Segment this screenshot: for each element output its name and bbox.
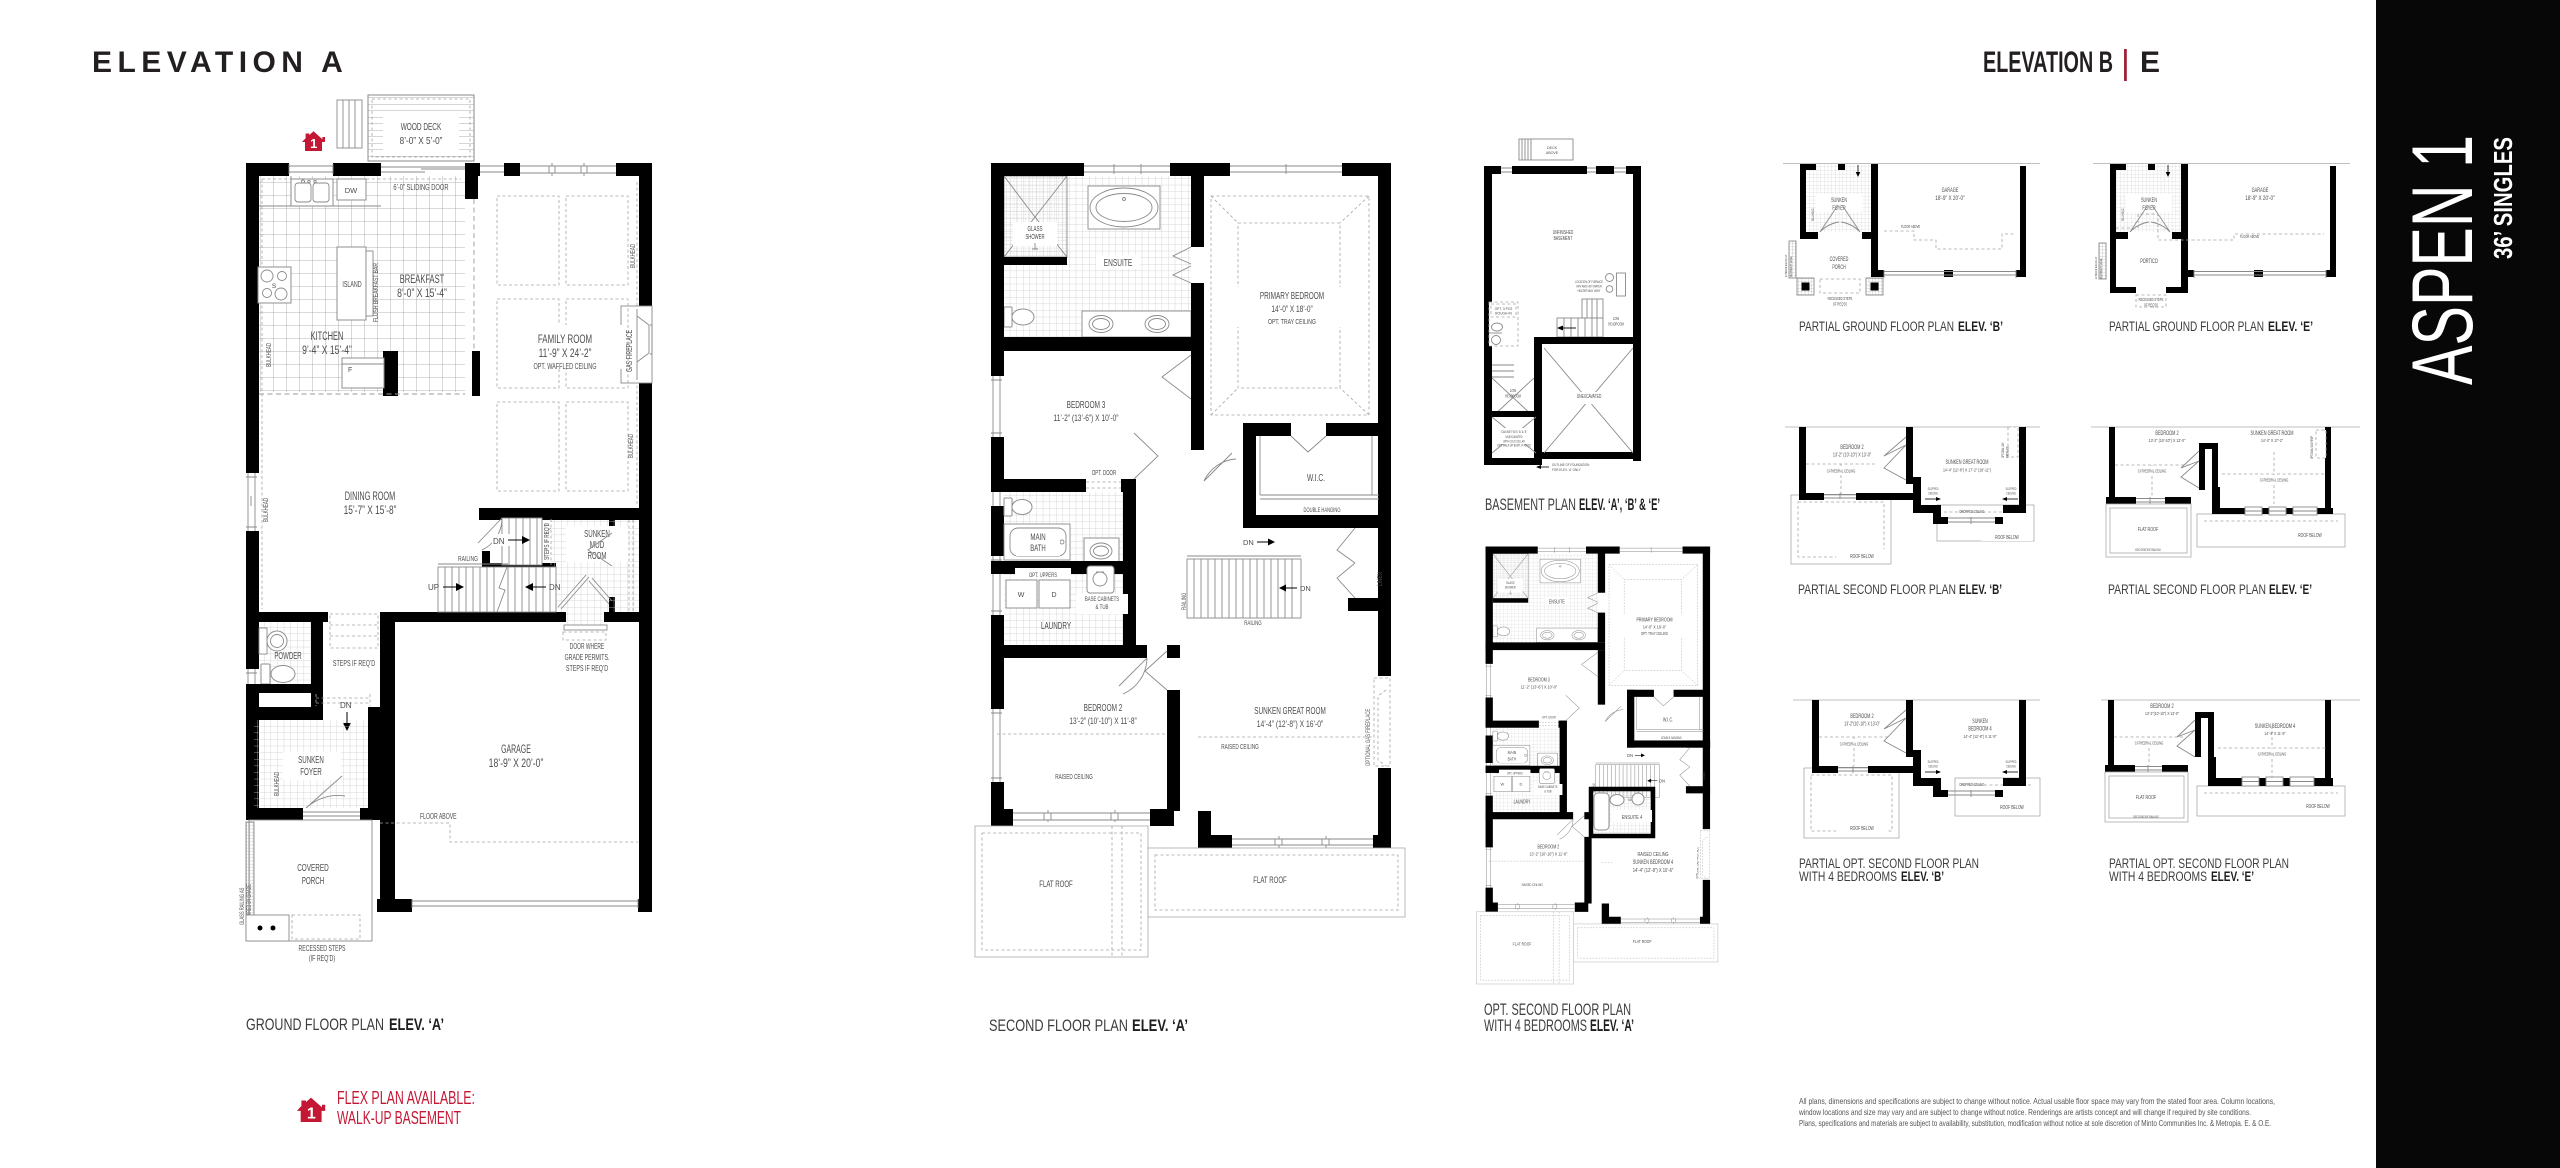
svg-text:PORTICO: PORTICO xyxy=(2140,258,2158,265)
svg-text:GAS FIREPLACE: GAS FIREPLACE xyxy=(625,330,634,372)
svg-text:ASPEN 1: ASPEN 1 xyxy=(2395,135,2491,385)
svg-text:GARAGE: GARAGE xyxy=(501,744,531,756)
svg-text:LAUNDRY: LAUNDRY xyxy=(1041,621,1071,632)
svg-text:15’-7” X 15’-8”: 15’-7” X 15’-8” xyxy=(344,505,397,517)
svg-text:PORCH: PORCH xyxy=(1832,264,1845,271)
svg-text:UP: UP xyxy=(428,583,439,592)
svg-text:BASEMENT PLAN: BASEMENT PLAN xyxy=(1485,495,1576,514)
svg-text:(IF REQ’D): (IF REQ’D) xyxy=(309,954,336,963)
svg-text:ELEV. ‘A’: ELEV. ‘A’ xyxy=(1590,1016,1634,1035)
svg-text:DOOR WHERE: DOOR WHERE xyxy=(570,642,604,651)
svg-text:BULKHEAD: BULKHEAD xyxy=(628,434,635,458)
svg-text:ELEV. ‘A’: ELEV. ‘A’ xyxy=(389,1015,444,1034)
svg-text:SUNKEN BEDROOM 4: SUNKEN BEDROOM 4 xyxy=(2255,724,2296,730)
svg-text:LINEN: LINEN xyxy=(1377,572,1384,586)
svg-text:HEADROOM: HEADROOM xyxy=(1608,322,1624,327)
svg-text:BREAKFAST: BREAKFAST xyxy=(400,274,445,286)
svg-text:FLUSH BREAKFAST BAR: FLUSH BREAKFAST BAR xyxy=(371,263,380,322)
svg-text:UNEXCAVATED: UNEXCAVATED xyxy=(1577,394,1602,400)
svg-text:DN: DN xyxy=(1243,538,1254,547)
svg-text:ROOF BELOW: ROOF BELOW xyxy=(2306,804,2330,810)
svg-text:SUNKEN: SUNKEN xyxy=(2141,197,2157,204)
svg-text:SLOPPED: SLOPPED xyxy=(2006,760,2017,764)
svg-text:BASE CABINETS: BASE CABINETS xyxy=(1085,596,1120,603)
svg-text:13'-2" (10'-10") X 13'-0": 13'-2" (10'-10") X 13'-0" xyxy=(1833,453,1871,459)
svg-text:13'-2"(10'-10") X 13'-0": 13'-2"(10'-10") X 13'-0" xyxy=(1844,722,1880,728)
svg-text:HRV AND HOT WATER: HRV AND HOT WATER xyxy=(1576,285,1602,289)
svg-text:BEDROOM 2: BEDROOM 2 xyxy=(1084,703,1123,714)
svg-text:ISLAND: ISLAND xyxy=(342,280,361,289)
svg-text:ABOVE: ABOVE xyxy=(1546,151,1559,155)
svg-text:(IF REQ'D): (IF REQ'D) xyxy=(1833,302,1847,307)
svg-text:BEDROOM 2: BEDROOM 2 xyxy=(2150,704,2174,710)
svg-text:STEPS IF REQ’D: STEPS IF REQ’D xyxy=(333,659,375,668)
svg-text:ROOF BELOW: ROOF BELOW xyxy=(2000,805,2024,811)
svg-text:Plans, specifications and mate: Plans, specifications and materials are … xyxy=(1799,1118,2271,1128)
svg-text:CATHEDRAL CEILING: CATHEDRAL CEILING xyxy=(2260,478,2289,483)
svg-text:RAISED CEILING: RAISED CEILING xyxy=(1637,852,1668,858)
svg-text:REQUIRED BY GRADE: REQUIRED BY GRADE xyxy=(2099,259,2103,280)
svg-text:BASEMENT: BASEMENT xyxy=(1554,236,1573,242)
svg-text:ENSUITE: ENSUITE xyxy=(1104,258,1133,269)
svg-text:SECOND FLOOR PLAN: SECOND FLOOR PLAN xyxy=(989,1016,1128,1035)
svg-text:RECESSED STEPS: RECESSED STEPS xyxy=(2139,297,2164,302)
svg-text:8’-0” X 5’-0”: 8’-0” X 5’-0” xyxy=(400,135,443,147)
svg-text:SLOPPED: SLOPPED xyxy=(1928,760,1939,764)
svg-text:CAN BE FLEX 'A' & 'E': CAN BE FLEX 'A' & 'E' xyxy=(1501,430,1527,434)
svg-text:11’-9” X 24’-2”: 11’-9” X 24’-2” xyxy=(539,348,592,360)
svg-text:CATHEDRAL CEILING: CATHEDRAL CEILING xyxy=(1827,469,1856,474)
svg-text:UNEXCAVATED: UNEXCAVATED xyxy=(1506,435,1523,439)
svg-text:HEATER MAY VARY: HEATER MAY VARY xyxy=(1578,289,1601,293)
svg-text:KITCHEN: KITCHEN xyxy=(311,331,344,343)
svg-text:POWDER: POWDER xyxy=(274,651,301,662)
svg-text:STEPS IF REQ’D: STEPS IF REQ’D xyxy=(566,664,608,673)
svg-text:window locations and size may: window locations and size may vary and a… xyxy=(1798,1107,2251,1117)
svg-text:GLASS: GLASS xyxy=(1028,226,1043,233)
svg-text:FLEX PLAN AVAILABLE:: FLEX PLAN AVAILABLE: xyxy=(337,1088,475,1108)
svg-text:BEDROOM 2: BEDROOM 2 xyxy=(1840,445,1864,451)
svg-text:COVERED: COVERED xyxy=(297,862,329,874)
svg-text:MAIN: MAIN xyxy=(1030,532,1045,542)
svg-text:ROUGH-IN: ROUGH-IN xyxy=(1495,312,1512,316)
svg-text:EXTERIOR RAILING AS: EXTERIOR RAILING AS xyxy=(2094,257,2098,279)
svg-text:ENSUITE 4: ENSUITE 4 xyxy=(1622,815,1643,821)
svg-text:ROOF BELOW: ROOF BELOW xyxy=(1850,554,1874,560)
svg-text:CEILING: CEILING xyxy=(2006,765,2016,769)
svg-text:WITH 4 BEDROOMS: WITH 4 BEDROOMS xyxy=(2109,869,2207,884)
svg-text:DOUBLE HANGING: DOUBLE HANGING xyxy=(1304,507,1341,514)
svg-text:BEDROOM 3: BEDROOM 3 xyxy=(1067,400,1106,411)
svg-text:FLOOR ABOVE: FLOOR ABOVE xyxy=(420,812,457,821)
svg-text:ELEV. ‘E’: ELEV. ‘E’ xyxy=(2268,319,2313,334)
svg-text:13'-2" (10'-10") X 13'-0": 13'-2" (10'-10") X 13'-0" xyxy=(2149,438,2186,444)
svg-text:14'-4" (12'-8") X 17'-2" (18': 14'-4" (12'-8") X 17'-2" (18'-11") xyxy=(1943,468,1991,474)
svg-text:LOW: LOW xyxy=(1510,388,1517,393)
svg-text:6’-0” SLIDING DOOR: 6’-0” SLIDING DOOR xyxy=(393,182,448,192)
svg-text:ELEV. ‘B’: ELEV. ‘B’ xyxy=(1959,582,2002,597)
svg-text:RAILING: RAILING xyxy=(458,554,478,563)
svg-text:DECK: DECK xyxy=(1547,146,1558,150)
svg-text:CEILING: CEILING xyxy=(1928,765,1938,769)
svg-text:13'-2"(10'-10") X 13'-0": 13'-2"(10'-10") X 13'-0" xyxy=(2145,711,2179,717)
svg-text:CATHEDRAL CEILING: CATHEDRAL CEILING xyxy=(1840,742,1869,747)
svg-text:BULKHEAD: BULKHEAD xyxy=(2121,208,2125,221)
svg-text:PARTIAL SECOND FLOOR PLAN: PARTIAL SECOND FLOOR PLAN xyxy=(2108,582,2266,597)
svg-text:HEADROOM: HEADROOM xyxy=(1505,394,1521,399)
svg-text:PORCH: PORCH xyxy=(302,875,325,887)
svg-text:BULKHEAD: BULKHEAD xyxy=(274,772,281,796)
svg-text:OPT. UPPERS: OPT. UPPERS xyxy=(1029,572,1058,579)
svg-text:ELEV. ‘E’: ELEV. ‘E’ xyxy=(2211,869,2254,884)
svg-text:CEILING: CEILING xyxy=(2006,492,2016,496)
svg-text:DN: DN xyxy=(493,537,505,546)
svg-text:14’-4” (12’-8”) X 10’-6”: 14’-4” (12’-8”) X 10’-6” xyxy=(1633,868,1674,874)
svg-text:W.I.C.: W.I.C. xyxy=(1307,473,1325,484)
svg-text:ROOF BELOW: ROOF BELOW xyxy=(2298,533,2322,539)
svg-text:9’-4” X 15’-4”: 9’-4” X 15’-4” xyxy=(302,345,352,357)
svg-text:DN: DN xyxy=(1300,584,1311,593)
svg-text:13’-2” (10’-10”) X 11’-8”: 13’-2” (10’-10”) X 11’-8” xyxy=(1069,716,1136,726)
svg-text:W: W xyxy=(1018,592,1025,599)
svg-text:DN: DN xyxy=(549,583,561,592)
svg-text:PRIMARY BEDROOM: PRIMARY BEDROOM xyxy=(1260,291,1324,302)
svg-text:DECORATIVE RAILING: DECORATIVE RAILING xyxy=(2135,548,2161,552)
svg-text:BULKHEAD: BULKHEAD xyxy=(630,244,637,268)
svg-text:ELEV. ‘A’: ELEV. ‘A’ xyxy=(1132,1016,1188,1035)
svg-text:SHOWER: SHOWER xyxy=(1025,234,1044,241)
svg-text:PARTIAL SECOND FLOOR PLAN: PARTIAL SECOND FLOOR PLAN xyxy=(1798,582,1956,597)
svg-text:BEDROOM 2: BEDROOM 2 xyxy=(2155,431,2179,437)
svg-text:RECESSED STEPS: RECESSED STEPS xyxy=(299,944,346,953)
svg-text:OPT. WAFFLED CEILING: OPT. WAFFLED CEILING xyxy=(534,362,597,371)
svg-text:WOOD DECK: WOOD DECK xyxy=(401,121,442,133)
svg-text:14’-4” (12’-8”) X 16’-0”: 14’-4” (12’-8”) X 16’-0” xyxy=(1257,719,1324,729)
svg-text:DW: DW xyxy=(345,186,358,195)
svg-text:1: 1 xyxy=(310,136,317,151)
svg-text:GRADE PERMITS.: GRADE PERMITS. xyxy=(565,653,610,662)
svg-text:SUNKEN: SUNKEN xyxy=(1972,719,1988,725)
svg-text:CATHEDRAL CEILING: CATHEDRAL CEILING xyxy=(2138,469,2167,474)
svg-text:DN: DN xyxy=(340,701,352,710)
svg-text:ELEV. ‘E’: ELEV. ‘E’ xyxy=(2269,582,2312,597)
svg-text:FLOOR ABOVE: FLOOR ABOVE xyxy=(2240,234,2259,239)
svg-text:WITH 4 BEDROOMS: WITH 4 BEDROOMS xyxy=(1484,1016,1587,1035)
svg-text:PARTIAL GROUND FLOOR PLAN: PARTIAL GROUND FLOOR PLAN xyxy=(1799,319,1954,334)
svg-text:DINING ROOM: DINING ROOM xyxy=(345,491,396,503)
svg-text:BULKHEAD: BULKHEAD xyxy=(266,343,273,367)
svg-text:SUNKEN: SUNKEN xyxy=(584,529,610,540)
svg-text:CEILING: CEILING xyxy=(1928,492,1938,496)
svg-text:RAISED CEILING: RAISED CEILING xyxy=(1221,744,1259,751)
svg-text:ELEV. ‘A’, ‘B’ & ‘E’: ELEV. ‘A’, ‘B’ & ‘E’ xyxy=(1579,495,1660,514)
svg-text:ROOF BELOW: ROOF BELOW xyxy=(1850,826,1874,832)
svg-text:SUNKEN GREAT ROOM: SUNKEN GREAT ROOM xyxy=(2251,431,2294,437)
svg-text:STEPS IF REQ’D: STEPS IF REQ’D xyxy=(544,523,551,560)
svg-text:PARTIAL GROUND FLOOR PLAN: PARTIAL GROUND FLOOR PLAN xyxy=(2109,319,2264,334)
svg-text:OPTIONAL GAS: OPTIONAL GAS xyxy=(2001,443,2005,459)
svg-text:RECESSED STEPS: RECESSED STEPS xyxy=(1828,296,1853,301)
svg-text:GLASS RAILING AS: GLASS RAILING AS xyxy=(240,888,246,925)
svg-text:ROOF BELOW: ROOF BELOW xyxy=(1995,535,2019,541)
svg-text:FLAT ROOF: FLAT ROOF xyxy=(1253,875,1287,885)
svg-text:36’ SINGLES: 36’ SINGLES xyxy=(2488,137,2518,259)
svg-text:1: 1 xyxy=(307,1105,316,1122)
svg-text:BATH: BATH xyxy=(1030,543,1046,553)
svg-text:11’-2” (13’-6”) X 10’-0”: 11’-2” (13’-6”) X 10’-0” xyxy=(1054,413,1119,423)
svg-text:SUNKEN GREAT ROOM: SUNKEN GREAT ROOM xyxy=(1254,706,1326,717)
svg-text:S: S xyxy=(272,283,277,290)
svg-text:All plans, dimensions and spec: All plans, dimensions and specifications… xyxy=(1799,1096,2275,1106)
svg-text:OPT. DOOR: OPT. DOOR xyxy=(1092,470,1116,477)
svg-text:14'-4" X 11'-8": 14'-4" X 11'-8" xyxy=(2264,731,2285,737)
svg-text:FAMILY ROOM: FAMILY ROOM xyxy=(538,334,592,346)
svg-text:LOCATION OF FURNACE: LOCATION OF FURNACE xyxy=(1575,280,1603,284)
svg-text:CATHEDRAL CEILING: CATHEDRAL CEILING xyxy=(2258,752,2287,757)
svg-text:BULKHEAD: BULKHEAD xyxy=(1811,208,1815,221)
svg-text:BEDROOM 4: BEDROOM 4 xyxy=(1968,727,1992,733)
svg-text:FOR ELEV. 'A' ONLY: FOR ELEV. 'A' ONLY xyxy=(1552,467,1581,472)
svg-text:LOW: LOW xyxy=(1613,316,1620,321)
svg-text:DROPPED CEILING: DROPPED CEILING xyxy=(1960,509,1985,514)
svg-text:14'-4" (12'-8") X 11'-8": 14'-4" (12'-8") X 11'-8" xyxy=(1963,734,1997,740)
svg-text:18’-9” X 20’-0”: 18’-9” X 20’-0” xyxy=(489,758,544,770)
svg-text:DECORATIVE RAILING: DECORATIVE RAILING xyxy=(2133,815,2159,819)
svg-text:D: D xyxy=(1051,592,1056,599)
svg-text:FIREPLACE: FIREPLACE xyxy=(2006,446,2010,458)
svg-text:FLAT ROOF: FLAT ROOF xyxy=(1039,879,1073,889)
svg-text:8’-0” X 15’-4”: 8’-0” X 15’-4” xyxy=(397,288,447,300)
svg-text:14'-4" X 17'-2": 14'-4" X 17'-2" xyxy=(2261,438,2283,444)
svg-text:WALK-UP BASEMENT: WALK-UP BASEMENT xyxy=(337,1108,461,1128)
svg-text:GROUND FLOOR PLAN: GROUND FLOOR PLAN xyxy=(246,1015,384,1034)
svg-text:DROPPED CEILING: DROPPED CEILING xyxy=(1960,782,1985,787)
svg-text:GARAGE: GARAGE xyxy=(1942,187,1959,194)
svg-text:BULKHEAD: BULKHEAD xyxy=(263,498,270,522)
svg-text:FLOOR ABOVE: FLOOR ABOVE xyxy=(1901,224,1920,229)
svg-text:14’-0” X 18’-0”: 14’-0” X 18’-0” xyxy=(1271,304,1312,314)
svg-text:MUD: MUD xyxy=(590,540,604,551)
svg-text:FOYER: FOYER xyxy=(300,767,322,778)
svg-text:& TUB: & TUB xyxy=(1096,604,1109,611)
svg-text:SUNKEN BEDROOM 4: SUNKEN BEDROOM 4 xyxy=(1633,860,1674,866)
svg-text:EXTERIOR RAILING AS: EXTERIOR RAILING AS xyxy=(1784,255,1788,277)
svg-text:CATHEDRAL CEILING: CATHEDRAL CEILING xyxy=(2135,741,2164,746)
svg-text:WITH 4 BEDROOMS: WITH 4 BEDROOMS xyxy=(1799,869,1897,884)
svg-text:RAILING: RAILING xyxy=(1181,593,1188,610)
svg-text:COVERED: COVERED xyxy=(1830,256,1849,263)
svg-text:SLOPPED: SLOPPED xyxy=(2006,487,2017,491)
svg-text:SLOPPED: SLOPPED xyxy=(1928,487,1939,491)
svg-text:ELEV. ‘B’: ELEV. ‘B’ xyxy=(1901,869,1944,884)
svg-text:OPT. WALK-UP BSMT. IF REQ'D: OPT. WALK-UP BSMT. IF REQ'D xyxy=(1497,444,1531,448)
svg-text:OPT. TRAY CEILING: OPT. TRAY CEILING xyxy=(1268,317,1316,326)
svg-text:OPT. 3 PCS: OPT. 3 PCS xyxy=(1495,307,1514,311)
svg-text:ELEV. ‘B’: ELEV. ‘B’ xyxy=(1958,319,2003,334)
svg-text:FLAT ROOF: FLAT ROOF xyxy=(2138,527,2159,533)
svg-text:RAILING: RAILING xyxy=(1244,620,1261,627)
svg-text:E: E xyxy=(2140,46,2160,79)
svg-text:F: F xyxy=(348,367,352,374)
svg-text:SUNKEN: SUNKEN xyxy=(298,755,324,766)
svg-text:BEDROOM 2: BEDROOM 2 xyxy=(1850,714,1874,720)
svg-text:RAISED CEILING: RAISED CEILING xyxy=(1055,774,1093,781)
svg-text:ELEVATION B: ELEVATION B xyxy=(1983,46,2113,79)
svg-text:SUNKEN: SUNKEN xyxy=(1831,197,1847,204)
svg-text:18'-9" X 20'-0": 18'-9" X 20'-0" xyxy=(2245,195,2275,202)
svg-text:REQUIRED BY GRADE: REQUIRED BY GRADE xyxy=(1789,257,1793,278)
svg-text:OPTIONAL GAS FIREP.: OPTIONAL GAS FIREP. xyxy=(2310,436,2314,459)
svg-text:SUNKEN GREAT ROOM: SUNKEN GREAT ROOM xyxy=(1946,460,1989,466)
svg-text:(IF REQ'D): (IF REQ'D) xyxy=(2144,303,2158,308)
svg-text:18'-9" X 20'-0": 18'-9" X 20'-0" xyxy=(1935,195,1965,202)
svg-text:|: | xyxy=(2121,44,2130,82)
svg-text:GARAGE: GARAGE xyxy=(2252,187,2269,194)
svg-text:FLAT ROOF: FLAT ROOF xyxy=(2136,795,2157,801)
